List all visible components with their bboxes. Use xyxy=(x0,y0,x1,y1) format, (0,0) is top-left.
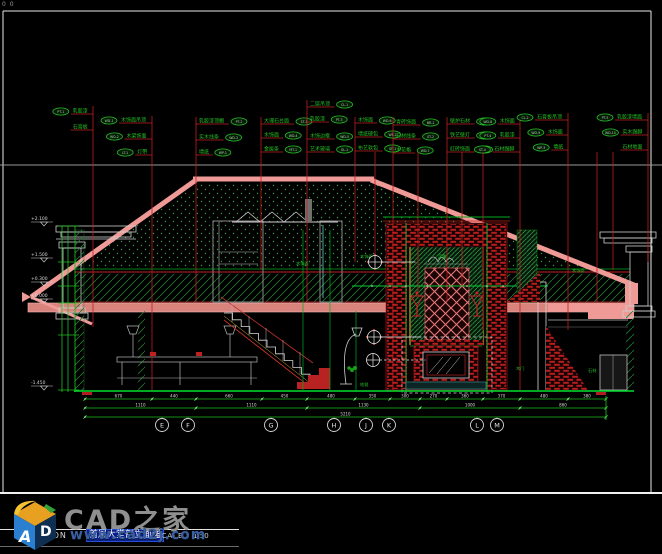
dim-value: 450 xyxy=(281,394,289,399)
dim-value: 370 xyxy=(498,394,506,399)
ground-line xyxy=(74,391,634,395)
callout-label: 木花格 xyxy=(396,147,411,154)
callout-tag: WD-9 xyxy=(531,131,540,135)
callout-tag: CL-1 xyxy=(341,103,348,107)
callout-label: 壁炉石材 xyxy=(450,118,470,125)
floor-structure xyxy=(28,269,634,312)
inline-label: 木饰面 xyxy=(296,260,309,267)
callout-label: 铁艺壁灯 xyxy=(450,132,470,139)
callout-tag: GL-1 xyxy=(341,148,348,152)
callout-tag: PT-3 xyxy=(336,118,343,122)
dim-tick-dot xyxy=(84,407,85,408)
callout-label: 石材地面 xyxy=(622,144,642,151)
grid-label: L xyxy=(475,421,479,429)
level-value: +2.100 xyxy=(31,216,48,222)
dim-tick-dot xyxy=(419,398,420,399)
callout-label: 石膏板 xyxy=(73,124,88,131)
callout-label: 大理石台面 xyxy=(264,118,289,125)
grid-label: J xyxy=(364,421,367,429)
level-triangle xyxy=(41,222,48,226)
hearth xyxy=(406,382,486,389)
floor-lamp xyxy=(340,328,362,384)
callout-label: 青砖饰面 xyxy=(396,119,416,126)
dim-tick-dot xyxy=(567,398,568,399)
dim-value: 440 xyxy=(170,394,178,399)
callout-tag: WD-2 xyxy=(110,135,119,139)
level-value: -1.450 xyxy=(31,380,46,386)
dim-value: 1110 xyxy=(135,403,146,408)
dim-value: 270 xyxy=(430,394,438,399)
dim-tick-dot xyxy=(519,407,520,408)
callout-label: 实木踢脚 xyxy=(622,129,642,136)
callout-tag: WD-5 xyxy=(340,135,349,139)
callout-tag: WD-1 xyxy=(105,119,114,123)
callout-tag: ST-1 xyxy=(301,120,308,124)
dim-tick-dot xyxy=(195,407,196,408)
dim-value: 480 xyxy=(540,394,548,399)
dim-tick-dot xyxy=(446,398,447,399)
dim-tick-dot xyxy=(195,398,196,399)
callout-label: 木饰面 xyxy=(264,132,279,139)
dim-tick-dot xyxy=(389,398,390,399)
grid-label: E xyxy=(160,421,164,429)
callout-label: 乳胶漆顶棚 xyxy=(199,118,224,125)
callout-tag: WD-7 xyxy=(421,149,430,153)
door-leaf xyxy=(600,355,627,390)
grid-bubbles-layer: EFGHJKLM xyxy=(156,417,504,432)
dim-tick-dot xyxy=(354,398,355,399)
dim-value: 670 xyxy=(115,394,123,399)
plant xyxy=(347,366,357,372)
callout-tag: MT-1 xyxy=(289,148,297,152)
dim-value: 350 xyxy=(369,394,377,399)
dim-value: 860 xyxy=(559,403,567,408)
dim-value: 1130 xyxy=(358,403,369,408)
dim-tick-dot xyxy=(306,398,307,399)
callout-label: 石材踢脚 xyxy=(494,146,514,153)
grid-label: K xyxy=(387,421,392,429)
dim-tick-dot xyxy=(84,416,85,417)
callout-label: 乳胶漆 xyxy=(500,132,515,139)
logo-letter-d: D xyxy=(40,524,52,540)
level-value: +0.300 xyxy=(31,276,48,282)
callout-tag: LT-1 xyxy=(122,151,128,155)
callout-tag: PT-5 xyxy=(602,116,609,120)
dim-tick-dot xyxy=(151,398,152,399)
callout-label: 红砖饰面 xyxy=(450,146,470,153)
inline-label: 木门 xyxy=(516,365,524,372)
callout-label: 木饰面 xyxy=(500,118,515,125)
callout-tag: WD-4 xyxy=(289,134,298,138)
inline-label: 木饰面 xyxy=(572,267,585,274)
grid-label: M xyxy=(494,421,500,429)
callout-label: 艺术玻璃 xyxy=(310,146,330,153)
table-lamp xyxy=(224,326,236,334)
callout-tag: BR-1 xyxy=(427,121,434,125)
callout-tag: WP-1 xyxy=(219,151,227,155)
callout-label: 石膏板吊顶 xyxy=(537,114,562,121)
dim-value: 380 xyxy=(583,394,591,399)
dim-value: 480 xyxy=(327,394,335,399)
callout-tag: ST-2 xyxy=(427,135,434,139)
table-lamp xyxy=(127,326,139,334)
dim-value: 360 xyxy=(461,394,469,399)
level-value: ±0.000 xyxy=(31,293,48,299)
callout-tag: WD-3 xyxy=(229,136,238,140)
callout-label: 木饰面 xyxy=(358,117,373,124)
callout-label: 布艺软包 xyxy=(358,145,378,152)
dim-tick-dot xyxy=(84,398,85,399)
callout-tag: PT-1 xyxy=(57,110,64,114)
callout-label: 乳胶漆墙面 xyxy=(617,114,642,121)
callout-label: 石材线条 xyxy=(396,133,416,140)
grid-label: G xyxy=(268,421,273,429)
logo-cube-icon: A D xyxy=(6,498,60,552)
watermark-logo: A D CAD之家 www.cad2j.com xyxy=(6,496,266,552)
dim-value: 300 xyxy=(401,394,409,399)
callout-label: 木梁饰面 xyxy=(126,133,146,140)
grid-label: F xyxy=(186,421,190,429)
level-value: +1.500 xyxy=(31,252,48,258)
grid-label: H xyxy=(332,421,337,429)
callout-tag: PT-2 xyxy=(236,120,243,124)
inline-label: 地毯 xyxy=(360,381,369,387)
callout-label: 灯带 xyxy=(137,149,147,156)
dim-value: 1110 xyxy=(246,403,257,408)
dim-value: 1000 xyxy=(465,403,476,408)
callout-label: 木饰面 xyxy=(548,129,563,136)
callout-label: 实木线条 xyxy=(199,134,219,141)
callout-label: 二层吊顶 xyxy=(310,102,330,108)
callout-tag: WD-6 xyxy=(383,119,392,123)
callout-label: 金属条 xyxy=(264,146,279,153)
inline-label: 浮雕 xyxy=(438,253,447,260)
callout-tag: WD-10 xyxy=(605,131,616,135)
dim-tick-dot xyxy=(261,398,262,399)
dim-tick-dot xyxy=(482,398,483,399)
callout-label: 乳胶漆 xyxy=(310,116,325,123)
callout-tag: WP-3 xyxy=(537,146,545,150)
level-triangle xyxy=(41,258,48,262)
logo-letter-a: A xyxy=(17,527,31,546)
dim-tick-dot xyxy=(306,407,307,408)
callout-label: 墙纸硬包 xyxy=(358,131,378,138)
callout-label: 木饰面吊顶 xyxy=(121,117,146,124)
callout-label: 墙纸 xyxy=(553,144,563,151)
callout-tag: PT-4 xyxy=(484,134,491,138)
callout-label: 乳胶漆 xyxy=(73,108,88,115)
dim-tick-dot xyxy=(419,407,420,408)
cad-viewport[interactable]: 0 0 xyxy=(0,0,662,554)
dim-tick-dot xyxy=(519,398,520,399)
inline-label: 石材 xyxy=(588,367,596,374)
cad-drawing-canvas[interactable]: 乳胶漆PT-1石膏板木饰面吊顶WD-1木梁饰面WD-2灯带LT-1乳胶漆顶棚PT… xyxy=(0,0,662,554)
solid-steps xyxy=(297,368,330,389)
callout-label: 木饰边框 xyxy=(310,133,330,140)
website-url: www.cad2j.com xyxy=(70,527,206,543)
bottom-dimensions-layer: 6704406604504803503002703603704803801110… xyxy=(83,394,607,421)
level-triangle xyxy=(41,386,48,390)
dim-value: 5210 xyxy=(340,412,351,417)
dim-value: 660 xyxy=(225,394,233,399)
callout-tag: ST-4 xyxy=(479,148,486,152)
callout-label: 墙纸 xyxy=(199,149,209,156)
callout-tag: CL-2 xyxy=(521,116,528,120)
callout-tag: WD-8 xyxy=(483,120,492,124)
